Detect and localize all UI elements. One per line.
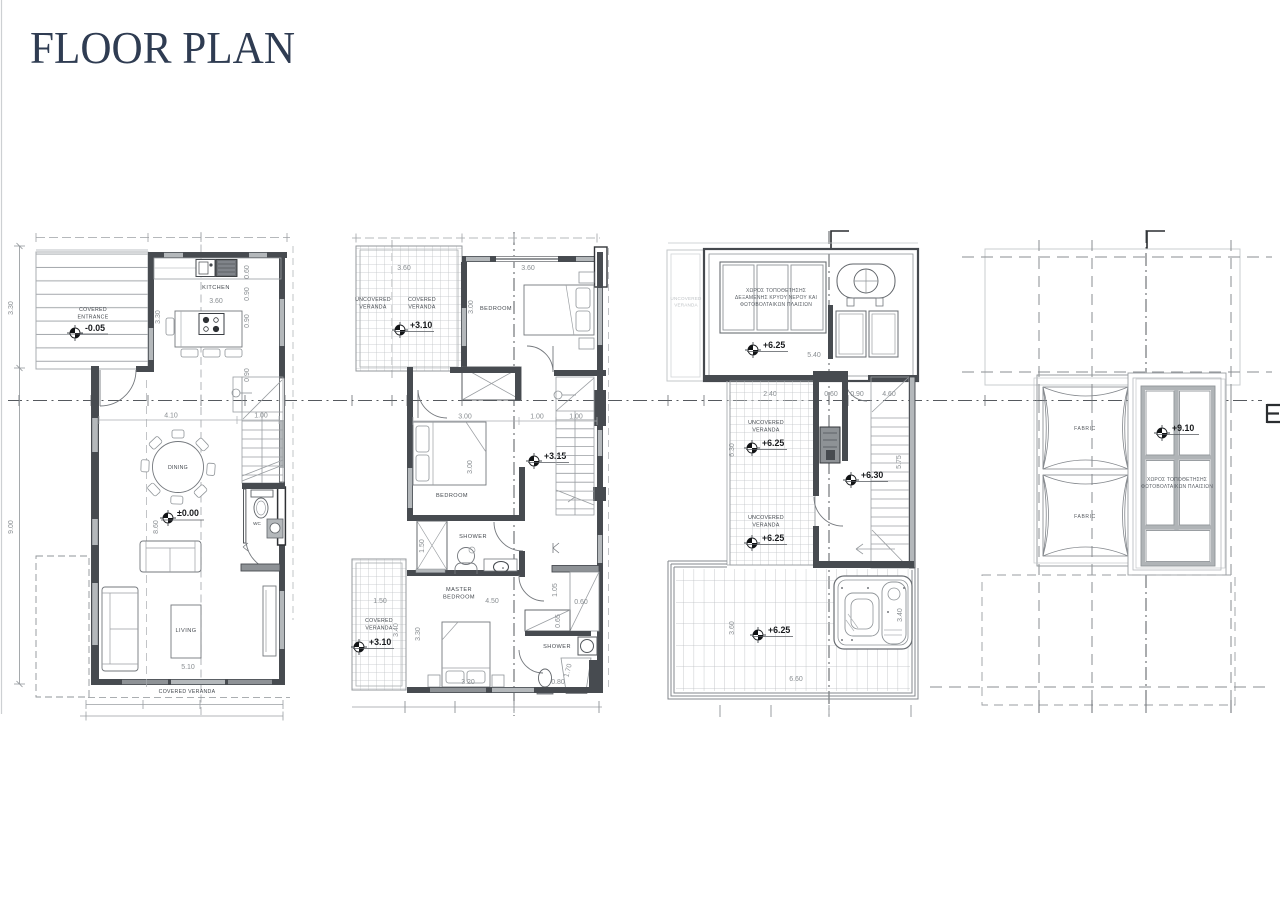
svg-text:+6.25: +6.25 [762,533,784,543]
svg-text:0.90: 0.90 [850,391,864,398]
svg-text:VERANDA: VERANDA [359,305,386,311]
svg-text:COVERED VERANDA: COVERED VERANDA [159,689,216,695]
svg-text:4.60: 4.60 [882,391,896,398]
svg-text:KITCHEN: KITCHEN [202,285,230,291]
svg-text:COVERED: COVERED [365,618,393,624]
svg-text:VERANDA: VERANDA [752,523,779,529]
svg-text:3.00: 3.00 [468,300,475,314]
svg-text:+6.25: +6.25 [762,438,784,448]
svg-text:BEDROOM: BEDROOM [480,306,512,312]
svg-text:+3.15: +3.15 [544,451,566,461]
svg-text:3.00: 3.00 [458,414,472,421]
svg-text:VERANDA: VERANDA [752,428,779,434]
svg-text:3.60: 3.60 [209,298,223,305]
svg-text:4.50: 4.50 [485,598,499,605]
svg-text:3.60: 3.60 [397,265,411,272]
svg-text:1.00: 1.00 [254,413,268,420]
svg-text:3.60: 3.60 [521,265,535,272]
svg-text:0.65: 0.65 [555,614,562,628]
svg-text:0.60: 0.60 [574,599,588,606]
svg-text:3.30: 3.30 [415,627,422,641]
svg-text:0.90: 0.90 [244,368,251,382]
svg-text:4.10: 4.10 [164,413,178,420]
svg-text:3.30: 3.30 [8,301,15,315]
svg-text:BEDROOM: BEDROOM [443,595,475,601]
svg-text:3.30: 3.30 [155,310,162,324]
svg-text:1.50: 1.50 [373,598,387,605]
svg-text:5.40: 5.40 [807,352,821,359]
svg-text:ΧΩΡΟΣ ΤΟΠΟΘΕΤΗΣΗΣ: ΧΩΡΟΣ ΤΟΠΟΘΕΤΗΣΗΣ [746,288,806,294]
svg-text:COVERED: COVERED [408,297,436,303]
svg-text:5.75: 5.75 [896,455,903,469]
svg-text:3.40: 3.40 [897,608,904,622]
svg-text:+6.30: +6.30 [861,470,883,480]
svg-text:UNCOVERED: UNCOVERED [670,296,702,301]
svg-text:1.50: 1.50 [419,539,426,553]
svg-text:0.90: 0.90 [244,287,251,301]
svg-text:0.60: 0.60 [244,265,251,279]
svg-text:2.40: 2.40 [763,391,777,398]
svg-text:1.00: 1.00 [569,414,583,421]
svg-text:+6.25: +6.25 [763,340,785,350]
svg-text:UNCOVERED: UNCOVERED [355,297,391,303]
svg-text:FLOOR PLAN: FLOOR PLAN [30,22,295,73]
svg-text:9.00: 9.00 [8,520,15,534]
svg-text:ΧΩΡΟΣ ΤΟΠΟΘΕΤΗΣΗΣ: ΧΩΡΟΣ ΤΟΠΟΘΕΤΗΣΗΣ [1147,477,1207,483]
svg-text:6.60: 6.60 [789,676,803,683]
svg-text:ΦΩΤΟΒΟΛΤΑΙΚΩΝ ΠΛΑΙΣΙΩΝ: ΦΩΤΟΒΟΛΤΑΙΚΩΝ ΠΛΑΙΣΙΩΝ [740,302,812,308]
svg-text:ΦΩΤΟΒΟΛΤΑΙΚΩΝ ΠΛΑΙΣΙΩΝ: ΦΩΤΟΒΟΛΤΑΙΚΩΝ ΠΛΑΙΣΙΩΝ [1141,484,1213,490]
svg-text:ENTRANCE: ENTRANCE [78,315,109,321]
svg-text:3.20: 3.20 [461,679,475,686]
svg-text:±0.00: ±0.00 [177,508,199,518]
svg-text:ΔΕΞΑΜΕΝΗΣ ΚΡΥΟΥ ΝΕΡΟΥ ΚΑΙ: ΔΕΞΑΜΕΝΗΣ ΚΡΥΟΥ ΝΕΡΟΥ ΚΑΙ [735,295,817,301]
svg-text:+9.10: +9.10 [1172,423,1194,433]
svg-text:BEDROOM: BEDROOM [436,493,468,499]
svg-text:3.60: 3.60 [729,621,736,635]
svg-text:1.00: 1.00 [530,414,544,421]
svg-text:WC: WC [253,521,261,526]
svg-text:+3.10: +3.10 [410,320,432,330]
svg-text:UNCOVERED: UNCOVERED [748,420,784,426]
svg-text:3.00: 3.00 [467,460,474,474]
svg-text:0.80: 0.80 [551,679,565,686]
svg-text:FABRIC: FABRIC [1074,514,1096,520]
svg-text:0.60: 0.60 [824,391,838,398]
svg-text:VERANDA: VERANDA [408,305,435,311]
svg-text:SHOWER: SHOWER [543,644,571,650]
svg-text:VERANDA: VERANDA [365,626,392,632]
svg-text:-0.05: -0.05 [85,323,105,333]
svg-text:UNCOVERED: UNCOVERED [748,515,784,521]
svg-text:DINING: DINING [168,465,188,471]
svg-text:8.60: 8.60 [153,520,160,534]
svg-text:+3.10: +3.10 [369,637,391,647]
svg-text:LIVING: LIVING [175,628,196,634]
svg-text:FABRIC: FABRIC [1074,426,1096,432]
svg-text:1.05: 1.05 [552,583,559,597]
svg-text:6.30: 6.30 [729,443,736,457]
svg-text:+6.25: +6.25 [768,625,790,635]
svg-text:SHOWER: SHOWER [459,534,487,540]
svg-text:0.90: 0.90 [244,314,251,328]
svg-text:MASTER: MASTER [446,587,472,593]
svg-text:VERANDA: VERANDA [674,303,698,308]
svg-text:COVERED: COVERED [79,307,107,313]
svg-text:5.10: 5.10 [181,664,195,671]
